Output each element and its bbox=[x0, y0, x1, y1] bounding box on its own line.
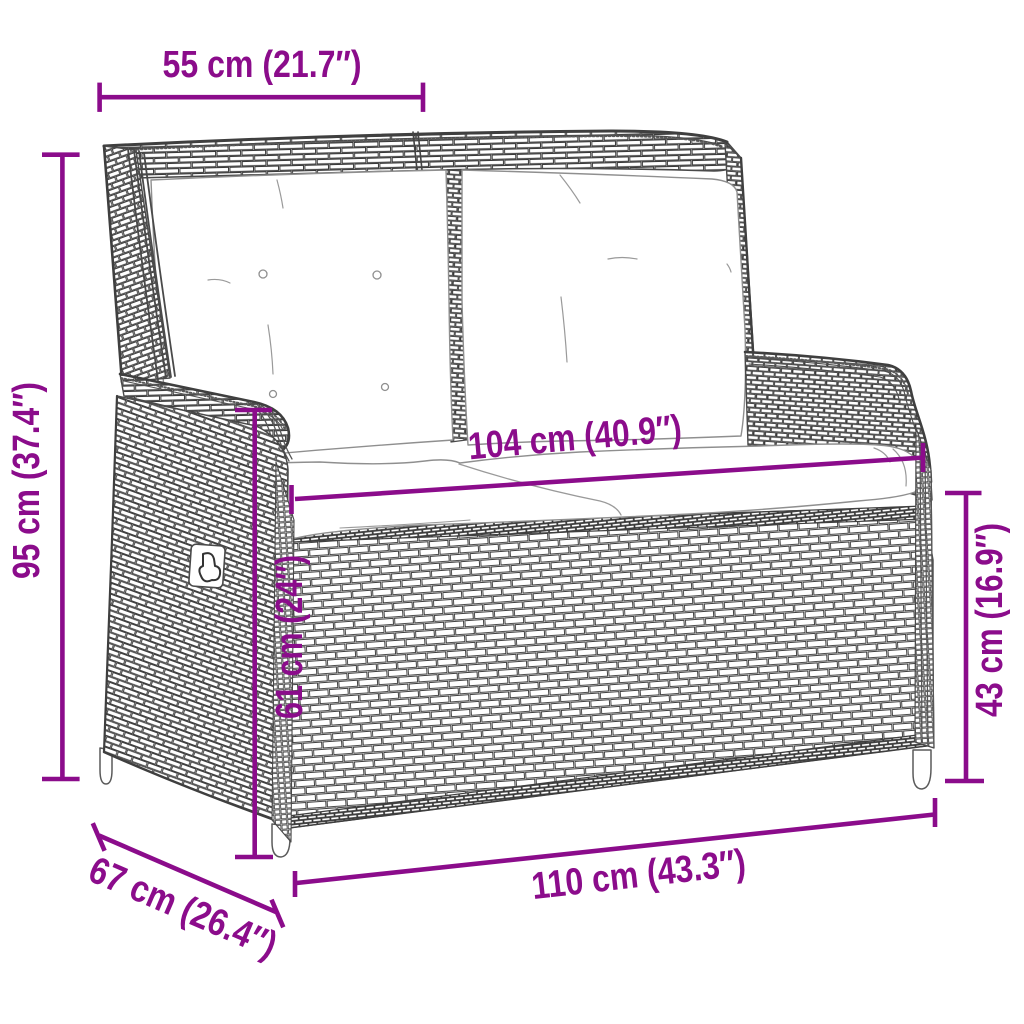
svg-text:55 cm (21.7″): 55 cm (21.7″) bbox=[163, 44, 362, 86]
svg-text:61 cm (24″): 61 cm (24″) bbox=[269, 555, 311, 719]
svg-text:43 cm (16.9″): 43 cm (16.9″) bbox=[969, 523, 1011, 717]
svg-text:95 cm (37.4″): 95 cm (37.4″) bbox=[6, 382, 48, 579]
